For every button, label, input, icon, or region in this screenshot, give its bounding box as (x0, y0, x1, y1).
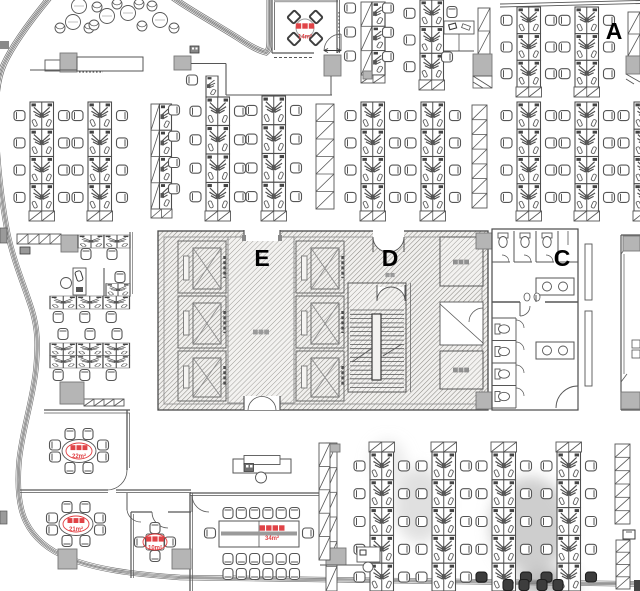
svg-text:22m²: 22m² (72, 453, 86, 460)
svg-text:34m²: 34m² (265, 535, 279, 542)
svg-text:10m²: 10m² (148, 545, 162, 552)
svg-text:21m²: 21m² (69, 526, 83, 533)
svg-text:14m²: 14m² (298, 34, 312, 41)
svg-text:D: D (382, 245, 399, 271)
svg-text:E: E (254, 245, 269, 271)
svg-text:C: C (554, 245, 571, 271)
svg-text:A: A (606, 18, 623, 44)
